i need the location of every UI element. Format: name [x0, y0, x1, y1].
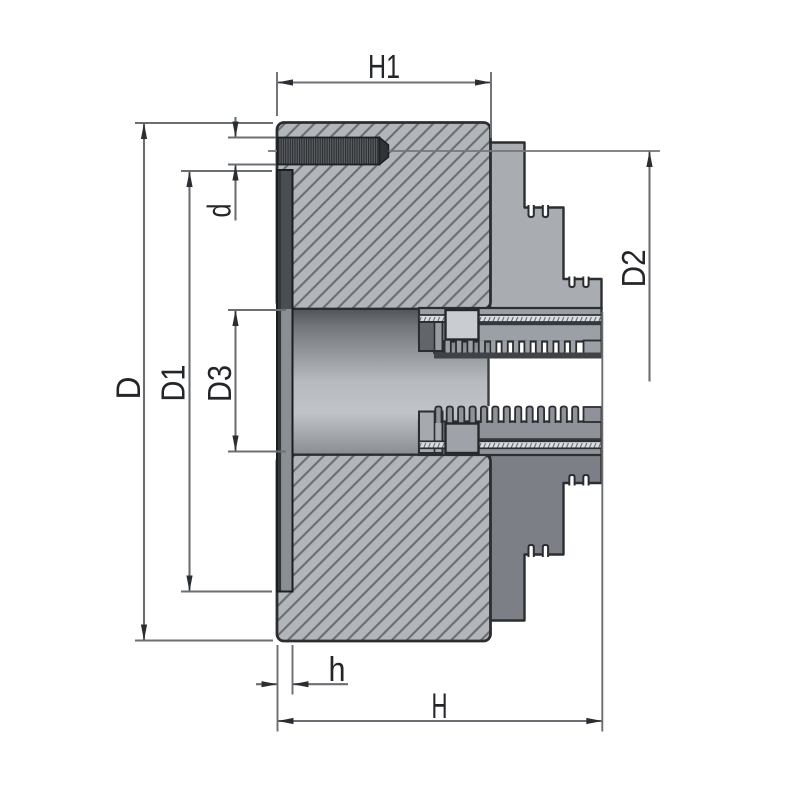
svg-text:d: d — [201, 204, 238, 218]
svg-text:D: D — [110, 377, 148, 400]
svg-text:D3: D3 — [201, 365, 238, 402]
svg-text:D1: D1 — [155, 365, 192, 402]
svg-text:D2: D2 — [615, 249, 652, 287]
svg-text:H1: H1 — [368, 48, 400, 85]
svg-text:h: h — [329, 651, 346, 689]
svg-text:H: H — [432, 687, 448, 726]
